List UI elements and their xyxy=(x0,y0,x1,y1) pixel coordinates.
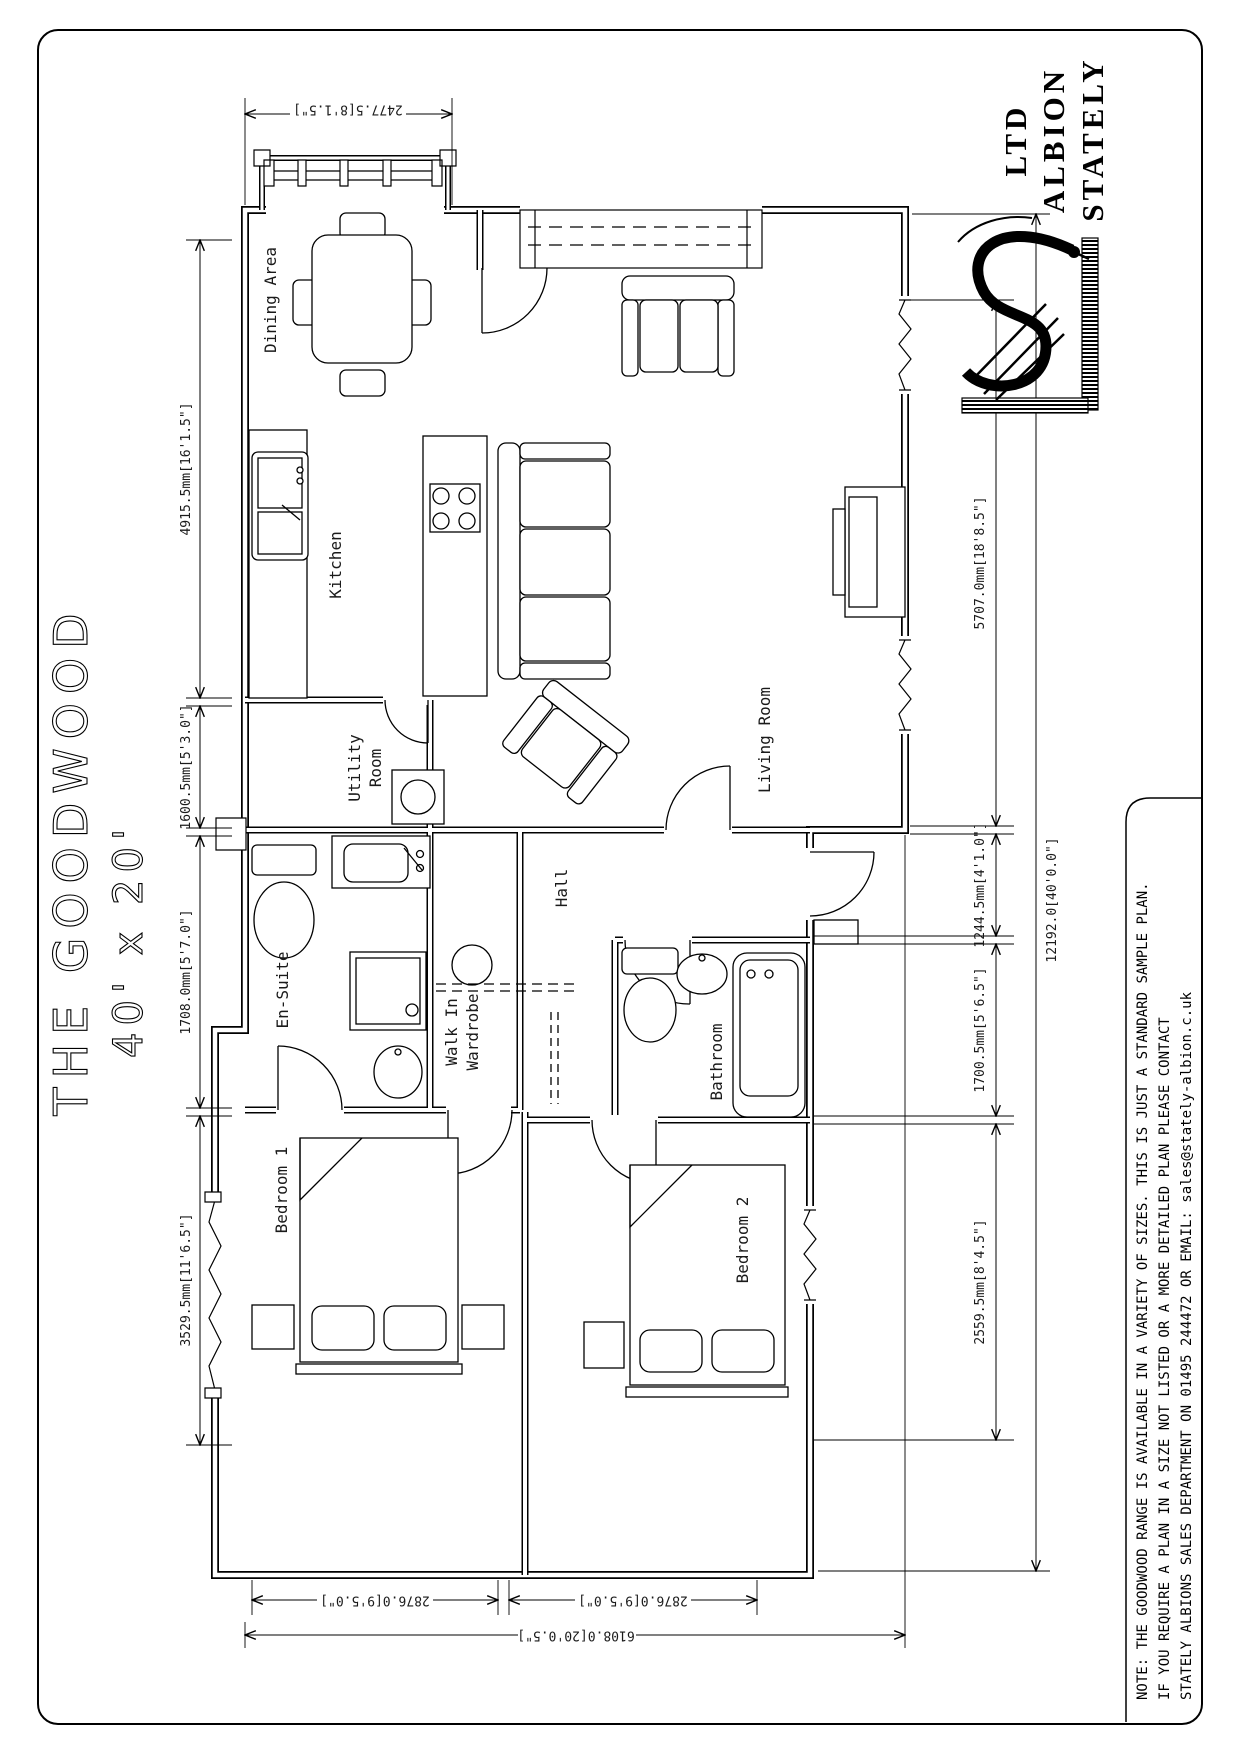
dim-overall-height: 12192.0[40'0.0"] xyxy=(1045,837,1060,962)
room-label-bedroom2: Bedroom 2 xyxy=(733,1197,752,1284)
dim-bottom-2: 2876.0[9'5.0"] xyxy=(578,1593,688,1608)
drawing-sheet: 2477.5[8'1.5"] 4915.5mm[16'1.5"] 1600.5m… xyxy=(0,0,1240,1754)
room-label-utility-2: Room xyxy=(366,749,385,788)
dim-bottom-1: 2876.0[9'5.0"] xyxy=(320,1593,430,1608)
kitchen-units xyxy=(249,430,487,698)
dim-right-1: 5707.0mm[18'8.5"] xyxy=(973,496,988,629)
note-block: NOTE: THE GOODWOOD RANGE IS AVAILABLE IN… xyxy=(1132,802,1198,1700)
room-label-hall: Hall xyxy=(552,869,571,908)
dim-right-4: 2559.5mm[8'4.5"] xyxy=(973,1219,988,1344)
room-label-wardrobe-1: Walk In xyxy=(442,998,461,1065)
living-window-glazing xyxy=(528,227,754,245)
dim-left-4: 3529.5mm[11'6.5"] xyxy=(179,1213,194,1346)
plan-size: 40' x 20' xyxy=(106,675,152,1205)
company-word-stately: STATELY xyxy=(1074,44,1112,234)
floor-plan-canvas: 2477.5[8'1.5"] 4915.5mm[16'1.5"] 1600.5m… xyxy=(0,0,1240,1754)
dim-right-2: 1244.5mm[4'1.0"] xyxy=(973,822,988,947)
dim-left-2: 1600.5mm[5'3.0"] xyxy=(179,704,194,829)
living-window-posts xyxy=(535,210,747,268)
wardrobe-stool xyxy=(452,945,492,985)
room-label-utility-1: Utility xyxy=(345,734,364,802)
dining-set xyxy=(293,213,431,396)
dim-top: 2477.5[8'1.5"] xyxy=(293,102,403,117)
room-label-kitchen: Kitchen xyxy=(326,531,345,598)
note-line-1: NOTE: THE GOODWOOD RANGE IS AVAILABLE IN… xyxy=(1132,802,1154,1700)
living-window-frame xyxy=(520,210,762,268)
dim-right-3: 1700.5mm[5'6.5"] xyxy=(973,967,988,1092)
bedroom2-furniture xyxy=(584,1165,788,1397)
armchair xyxy=(501,678,632,806)
living-furniture xyxy=(498,276,905,806)
stately-albion-logo xyxy=(958,217,1098,413)
room-label-wardrobe-2: Wardrobe xyxy=(463,993,482,1070)
dim-overall-width: 6108.0[20'0.5"] xyxy=(517,1628,634,1643)
room-label-dining: Dining Area xyxy=(261,247,280,353)
utility-appliance xyxy=(392,770,444,824)
entrance-step xyxy=(814,920,858,944)
room-label-living: Living Room xyxy=(755,687,774,793)
note-line-3: STATELY ALBIONS SALES DEPARTMENT ON 0149… xyxy=(1176,802,1198,1700)
company-word-ltd: LTD xyxy=(998,88,1034,192)
dim-left-3: 1708.0mm[5'7.0"] xyxy=(179,909,194,1034)
closet-rail-dashed xyxy=(551,1012,558,1104)
room-label-bedroom1: Bedroom 1 xyxy=(272,1147,291,1234)
room-label-ensuite: En-Suite xyxy=(273,951,292,1028)
room-label-bathroom: Bathroom xyxy=(707,1023,726,1100)
dim-left-1: 4915.5mm[16'1.5"] xyxy=(179,402,194,535)
company-word-albion: ALBION xyxy=(1036,54,1072,226)
closet-shelf-dashed xyxy=(436,984,580,991)
note-line-2: IF YOU REQUIRE A PLAN IN A SIZE NOT LIST… xyxy=(1154,802,1176,1700)
bay-window-glazing xyxy=(268,171,442,180)
plan-title: THE GOODWOOD xyxy=(42,555,100,1165)
